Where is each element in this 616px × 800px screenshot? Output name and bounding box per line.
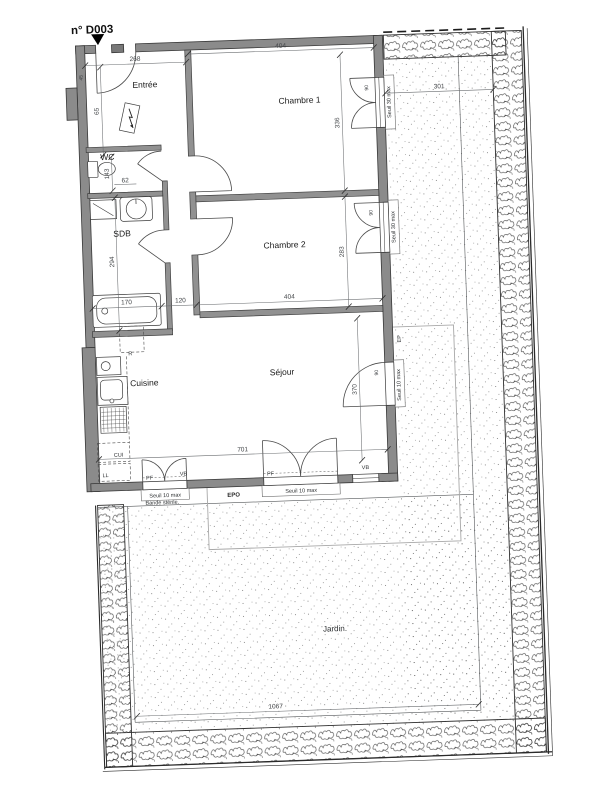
seuil30-chambre2: Seuil 30 max (390, 211, 397, 243)
pf-sejour: PF (267, 471, 275, 477)
dim-90-d3: 90 (374, 370, 380, 376)
pf-cuisine: PF (146, 476, 154, 482)
washing-machine-icon (90, 200, 117, 220)
dim-90-w1: 90 (364, 85, 370, 91)
wall-stub (66, 88, 78, 120)
dim-404-chambre2: 404 (284, 293, 295, 300)
dim-370: 370 (351, 383, 358, 394)
entrance-door-slab (111, 44, 123, 52)
seuil10-sejour: Seuil 10 max (285, 488, 317, 495)
seuil30-chambre1: Seuil 30 max (386, 86, 393, 118)
vb-cuisine: VB (180, 471, 188, 477)
dim-404-top: 404 (275, 43, 286, 50)
dim-701: 701 (237, 446, 248, 453)
room-label-cuisine: Cuisine (130, 377, 159, 388)
dim-62: 62 (122, 177, 130, 184)
dim-90-w2: 90 (368, 210, 374, 216)
ep-label: EP (397, 335, 403, 343)
drainer-icon (100, 406, 127, 433)
dim-336: 336 (334, 117, 341, 128)
ll-label: LL (102, 473, 108, 479)
room-label-jardin: Jardin. (323, 624, 347, 634)
room-label-chambre1: Chambre 1 (278, 94, 321, 105)
room-label-chambre2: Chambre 2 (263, 239, 306, 250)
dim-283: 283 (339, 246, 346, 257)
dim-1067: 1067 (268, 703, 283, 711)
hedge-top (383, 31, 506, 59)
floor-plan-page: 268 404 301 65 143 62 45 336 283 294 170… (0, 0, 616, 800)
page-title: n° D003 (71, 24, 114, 37)
cui-label: CUI (114, 453, 124, 459)
window-vb-small (353, 474, 379, 483)
washbasin-icon (120, 196, 153, 221)
dim-268: 268 (129, 56, 140, 63)
dim-294: 294 (109, 256, 116, 267)
dim-143: 143 (104, 168, 111, 179)
floor-plan-drawing: 268 404 301 65 143 62 45 336 283 294 170… (0, 0, 616, 800)
dim-301: 301 (434, 83, 445, 90)
seuil10-sejour-side: Seuil 10 max (396, 369, 403, 401)
rotated-plan-group: 268 404 301 65 143 62 45 336 283 294 170… (64, 9, 553, 772)
r-label: R (128, 351, 132, 357)
room-label-entree: Entrée (132, 79, 158, 90)
bathtub-icon (92, 293, 161, 327)
vb-sejour: VB (362, 465, 370, 471)
room-label-sejour: Séjour (270, 367, 295, 378)
seuil10-cuisine: Seuil 10 max (149, 493, 181, 500)
dim-170: 170 (121, 299, 132, 306)
room-label-wc: WC (100, 152, 115, 162)
kitchen-sink-icon (97, 376, 128, 405)
dim-45: 45 (79, 75, 85, 81)
room-label-sdb: SDB (113, 228, 131, 239)
kitchen-hob-icon (96, 357, 121, 376)
bande-sterile-label: Bande stérile. (145, 500, 179, 507)
epo-label: EPO (227, 492, 240, 498)
dim-120: 120 (175, 297, 186, 304)
dim-65: 65 (94, 107, 101, 115)
